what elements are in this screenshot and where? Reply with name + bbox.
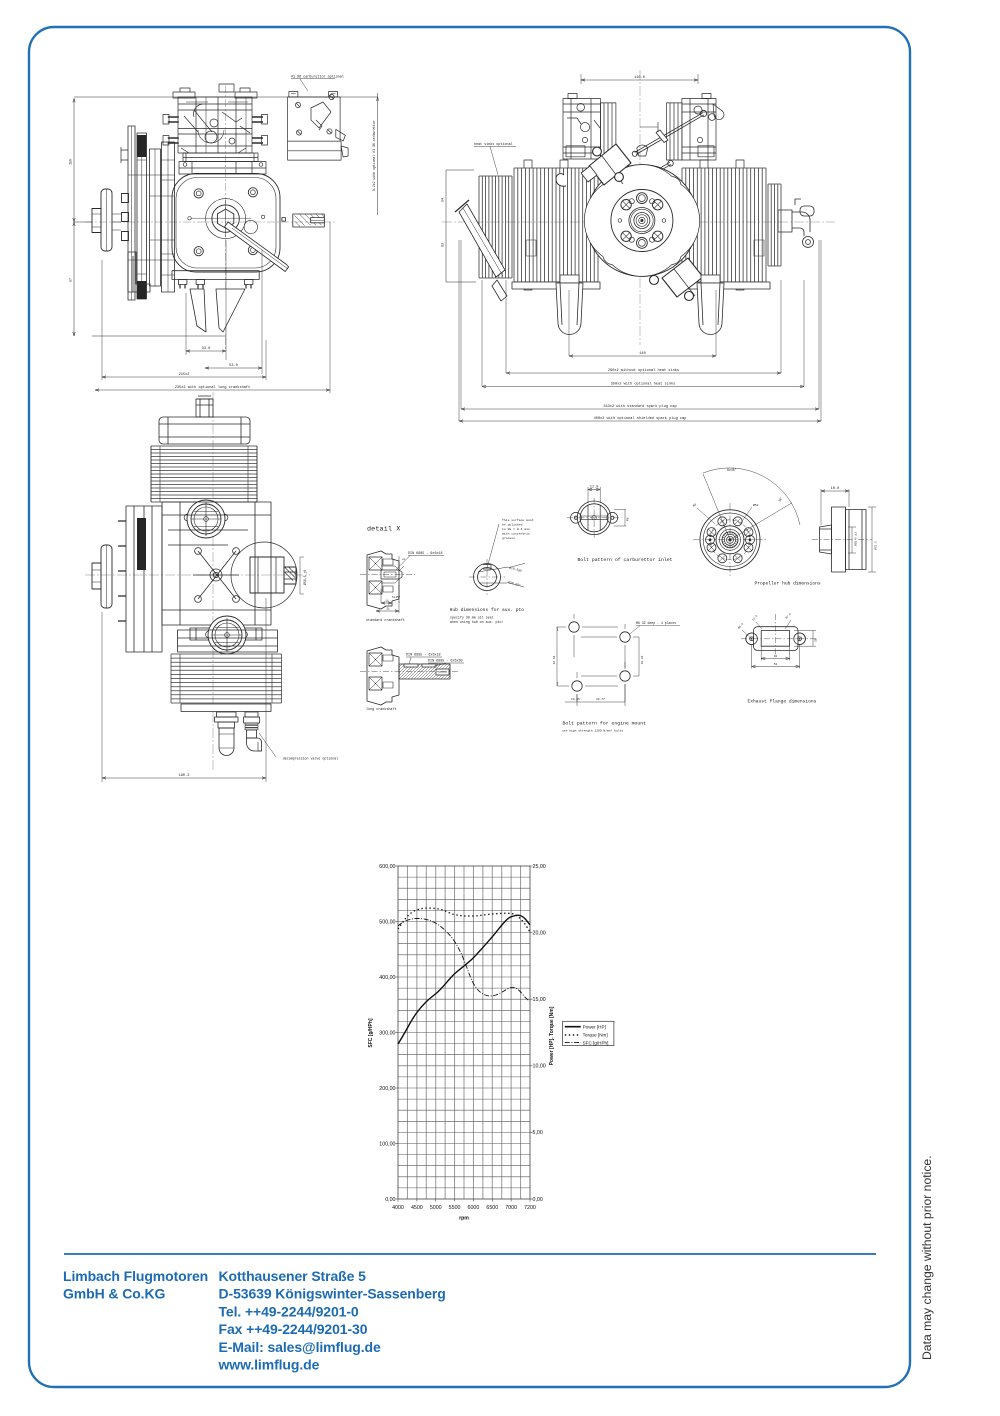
svg-text:Power [HP], Torque [Nm]: Power [HP], Torque [Nm] — [549, 1006, 555, 1065]
svg-text:40: 40 — [774, 655, 778, 658]
svg-text:140: 140 — [639, 352, 645, 356]
svg-text:6000: 6000 — [468, 1205, 480, 1211]
svg-text:Fax ++49-2244/9201-30: Fax ++49-2244/9201-30 — [219, 1321, 368, 1337]
svg-text:grooves: grooves — [502, 536, 515, 540]
svg-text:33.0: 33.0 — [202, 347, 211, 351]
svg-text:specify 30 mm oil seal: specify 30 mm oil seal — [450, 616, 494, 620]
svg-text:156: 156 — [69, 159, 73, 165]
svg-text:400x2 with optional shielded s: 400x2 with optional shielded spark plug … — [594, 416, 687, 421]
svg-text:54: 54 — [441, 198, 445, 202]
svg-text:19.05: 19.05 — [571, 698, 580, 701]
svg-text:www.limflug.de: www.limflug.de — [218, 1357, 320, 1373]
svg-text:300,00: 300,00 — [379, 1030, 395, 1036]
svg-text:Tel. ++49-2244/9201-0: Tel. ++49-2244/9201-0 — [219, 1303, 359, 1319]
svg-text:Bolt pattern of carburettor in: Bolt pattern of carburettor inlet — [578, 557, 673, 563]
svg-text:11.0: 11.0 — [590, 486, 599, 490]
svg-text:5x45°: 5x45° — [392, 595, 401, 599]
svg-text:290x2 without optional heat si: 290x2 without optional heat sinks — [608, 368, 679, 373]
svg-text:Power [HP]: Power [HP] — [583, 1024, 606, 1029]
svg-text:Ø52: Ø52 — [753, 503, 759, 507]
svg-text:343x2 with standard spark plug: 343x2 with standard spark plug cap — [603, 404, 676, 409]
svg-text:0,00: 0,00 — [533, 1197, 543, 1203]
svg-text:Data may change without prior: Data may change without prior notice. — [920, 1155, 934, 1360]
svg-text:400,00: 400,00 — [379, 975, 395, 981]
svg-text:32.64: 32.64 — [553, 655, 556, 664]
svg-text:200,00: 200,00 — [379, 1086, 395, 1092]
svg-text:M8 32 deep - 4 places: M8 32 deep - 4 places — [636, 621, 676, 625]
svg-text:25,00: 25,00 — [533, 864, 546, 870]
svg-text:E-Mail: sales@limflug.de: E-Mail: sales@limflug.de — [219, 1339, 381, 1355]
svg-text:57: 57 — [69, 278, 73, 282]
svg-text:Limbach Flugmotoren: Limbach Flugmotoren — [63, 1268, 208, 1284]
svg-text:SFC [g/HPh]: SFC [g/HPh] — [583, 1040, 609, 1045]
svg-text:20,00: 20,00 — [533, 930, 546, 936]
svg-text:SFC [g/HPh]: SFC [g/HPh] — [368, 1018, 374, 1047]
svg-text:5500: 5500 — [449, 1205, 461, 1211]
svg-text:detail X: detail X — [367, 526, 400, 534]
svg-text:100,00: 100,00 — [379, 1141, 395, 1147]
svg-text:38: 38 — [815, 638, 818, 642]
svg-text:53.0: 53.0 — [229, 364, 238, 368]
svg-text:Exhaust flange dimensions: Exhaust flange dimensions — [748, 699, 817, 705]
svg-text:5000: 5000 — [430, 1205, 442, 1211]
svg-text:Kotthausener Straße 5: Kotthausener Straße 5 — [219, 1268, 367, 1284]
svg-text:with concentric: with concentric — [502, 532, 530, 536]
svg-text:use high strength 1200 N/mm² b: use high strength 1200 N/mm² bolts — [562, 729, 623, 733]
svg-text:19.32: 19.32 — [641, 655, 644, 664]
svg-text:7000: 7000 — [505, 1205, 517, 1211]
svg-text:15,00: 15,00 — [533, 997, 546, 1003]
svg-text:10,00: 10,00 — [533, 1064, 546, 1070]
svg-text:to Ra = 0.4 min: to Ra = 0.4 min — [502, 527, 530, 531]
svg-text:4500: 4500 — [411, 1205, 423, 1211]
svg-text:This surface must: This surface must — [502, 518, 534, 522]
svg-text:Bolt pattern for engine mount: Bolt pattern for engine mount — [563, 721, 647, 727]
svg-text:5,00: 5,00 — [533, 1130, 543, 1136]
svg-text:600,00: 600,00 — [379, 864, 395, 870]
svg-text:be polished: be polished — [502, 523, 523, 527]
svg-text:decompression valve optional: decompression valve optional — [283, 757, 338, 761]
svg-text:D-53639 Königswinter-Sassenber: D-53639 Königswinter-Sassenberg — [219, 1286, 446, 1302]
svg-text:110.0: 110.0 — [634, 76, 645, 80]
svg-text:standard crankshaft: standard crankshaft — [366, 618, 405, 623]
svg-text:when using hub on aux. pto!: when using hub on aux. pto! — [450, 620, 503, 624]
svg-text:350x2 with optional heat sinks: 350x2 with optional heat sinks — [611, 382, 676, 387]
svg-text:4000: 4000 — [392, 1205, 404, 1211]
svg-text:21: 21 — [386, 608, 390, 611]
svg-text:11: 11 — [385, 600, 389, 603]
svg-text:52: 52 — [774, 663, 778, 666]
svg-text:Ø75.0: Ø75.0 — [874, 541, 878, 550]
svg-text:190.3: 190.3 — [179, 774, 190, 778]
svg-text:63: 63 — [441, 243, 445, 247]
svg-text:10.0: 10.0 — [831, 487, 840, 491]
svg-text:long crankshaft: long crankshaft — [366, 707, 397, 712]
svg-text:Ø35.0 a1: Ø35.0 a1 — [854, 532, 858, 546]
svg-text:GmbH & Co.KG: GmbH & Co.KG — [63, 1286, 165, 1302]
svg-text:M6: M6 — [627, 517, 630, 521]
svg-text:235x2 with optional long crank: 235x2 with optional long crankshaft — [175, 385, 250, 390]
svg-text:Hub dimensions for aux. pto: Hub dimensions for aux. pto — [450, 607, 525, 613]
svg-text:Torque [Nm]: Torque [Nm] — [583, 1032, 608, 1037]
svg-text:500,00: 500,00 — [379, 919, 395, 925]
svg-text:215x2: 215x2 — [179, 373, 190, 377]
svg-text:Propeller hub dimensions: Propeller hub dimensions — [755, 581, 821, 587]
svg-text:33.77: 33.77 — [596, 698, 605, 701]
svg-text:Ø56.5 j6: Ø56.5 j6 — [303, 570, 307, 585]
svg-text:6x45°: 6x45° — [727, 468, 737, 472]
svg-text:9.2x2 with optional #1 96 carb: 9.2x2 with optional #1 96 carburettor — [372, 120, 376, 191]
svg-text:6500: 6500 — [486, 1205, 498, 1211]
svg-text:7200: 7200 — [524, 1205, 536, 1211]
svg-text:rpm: rpm — [459, 1216, 469, 1222]
svg-text:0,00: 0,00 — [385, 1197, 395, 1203]
